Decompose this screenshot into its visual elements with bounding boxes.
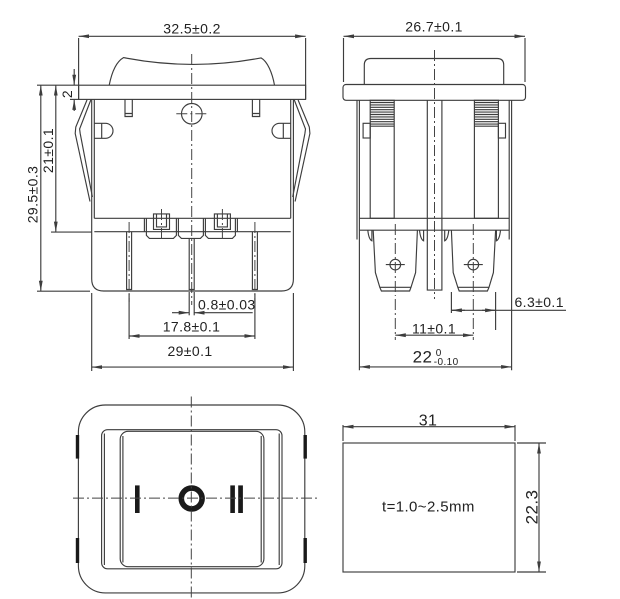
- svg-text:0.8±0.03: 0.8±0.03: [198, 297, 256, 313]
- svg-text:32.5±0.2: 32.5±0.2: [163, 21, 221, 37]
- svg-text:t=1.0~2.5mm: t=1.0~2.5mm: [382, 499, 475, 516]
- svg-text:22: 22: [413, 348, 433, 367]
- svg-text:2: 2: [59, 90, 75, 98]
- svg-text:6.3±0.1: 6.3±0.1: [515, 294, 564, 310]
- svg-text:26.7±0.1: 26.7±0.1: [405, 19, 463, 35]
- svg-text:29±0.1: 29±0.1: [167, 343, 212, 359]
- svg-text:11±0.1: 11±0.1: [412, 321, 456, 337]
- svg-text:21±0.1: 21±0.1: [40, 128, 56, 173]
- svg-text:29.5±0.3: 29.5±0.3: [24, 166, 40, 224]
- svg-text:17.8±0.1: 17.8±0.1: [163, 319, 221, 335]
